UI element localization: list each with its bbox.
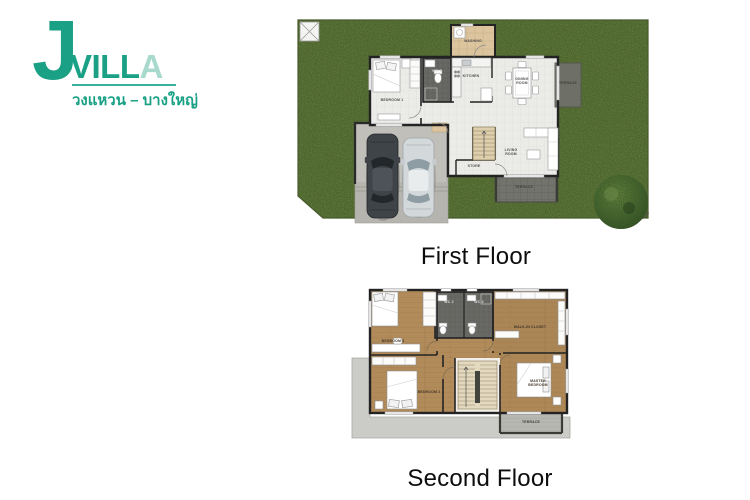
washing-machine xyxy=(454,27,465,38)
staircase-first-floor xyxy=(473,127,495,160)
corner-marker-icon xyxy=(300,22,319,41)
side-table-master-2 xyxy=(553,397,561,405)
brand-logo: J VILLA วงแหวน – บางใหญ่ xyxy=(30,14,240,114)
first-floor-plan: WASHING WC 1 KITCHEN DINING ROOM TERRACE… xyxy=(296,10,652,232)
logo-subtitle-thai: วงแหวน – บางใหญ่ xyxy=(72,88,198,112)
first-floor-caption: First Floor xyxy=(298,243,654,271)
car-dark xyxy=(365,134,400,221)
second-floor-caption: Second Floor xyxy=(320,465,640,493)
car-silver xyxy=(401,138,436,218)
staircase-second-floor xyxy=(455,358,500,412)
logo-wordmark: VILLA xyxy=(70,50,163,83)
bed-bedroom3 xyxy=(372,292,398,326)
chair-bedroom3 xyxy=(393,338,402,344)
side-table-master-1 xyxy=(553,355,561,363)
wardrobe-bedroom1 xyxy=(410,60,420,88)
first-floor-drawing xyxy=(296,10,652,232)
dresser-bedroom1 xyxy=(378,114,400,120)
second-floor-drawing xyxy=(345,283,577,441)
closet-bedroom3 xyxy=(423,292,436,326)
side-table-bedroom2 xyxy=(375,401,383,409)
desk-bedroom3 xyxy=(372,344,420,352)
terrace-second-floor xyxy=(500,413,562,433)
wardrobe-bedroom2 xyxy=(372,357,416,365)
bed-master xyxy=(517,363,551,397)
second-floor-plan: WC 2 WC 3 WALK-IN CLOSET BEDROOM 3 BEDRO… xyxy=(345,283,577,441)
logo-villa-accent-a: A xyxy=(140,48,163,85)
logo-divider xyxy=(72,84,176,86)
bed-bedroom2 xyxy=(387,371,417,409)
logo-villa-text: VILL xyxy=(70,48,140,85)
